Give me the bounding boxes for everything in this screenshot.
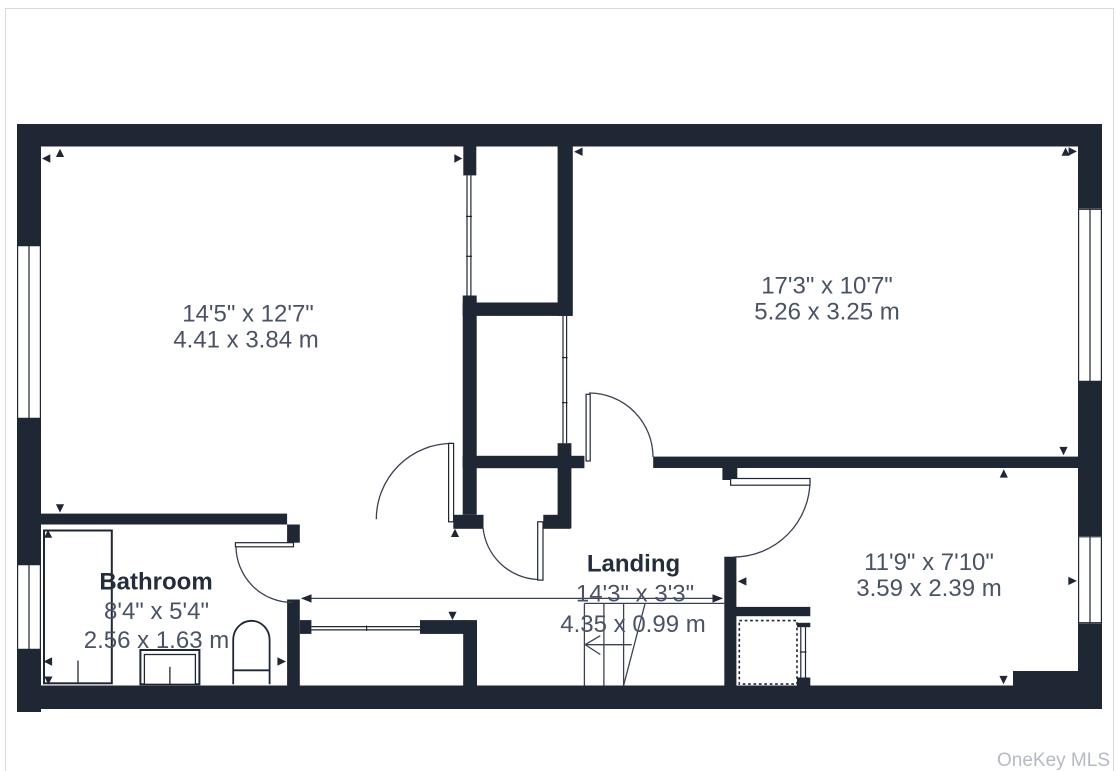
svg-text:2.56 x 1.63 m: 2.56 x 1.63 m (84, 627, 229, 654)
svg-text:14'5" x 12'7": 14'5" x 12'7" (182, 301, 314, 328)
svg-text:4.41 x 3.84 m: 4.41 x 3.84 m (173, 327, 318, 354)
svg-text:4.35 x 0.99 m: 4.35 x 0.99 m (560, 611, 705, 638)
svg-text:3.59 x 2.39 m: 3.59 x 2.39 m (856, 575, 1001, 602)
svg-text:17'3" x 10'7": 17'3" x 10'7" (761, 273, 893, 300)
svg-text:11'9" x 7'10": 11'9" x 7'10" (864, 549, 994, 576)
svg-text:OneKey MLS: OneKey MLS (997, 750, 1110, 771)
svg-text:Bathroom: Bathroom (99, 569, 212, 596)
svg-text:Landing: Landing (587, 551, 680, 578)
svg-text:14'3" x 3'3": 14'3" x 3'3" (576, 581, 694, 608)
svg-text:5.26 x 3.25 m: 5.26 x 3.25 m (754, 299, 899, 326)
svg-text:8'4" x 5'4": 8'4" x 5'4" (104, 598, 209, 625)
